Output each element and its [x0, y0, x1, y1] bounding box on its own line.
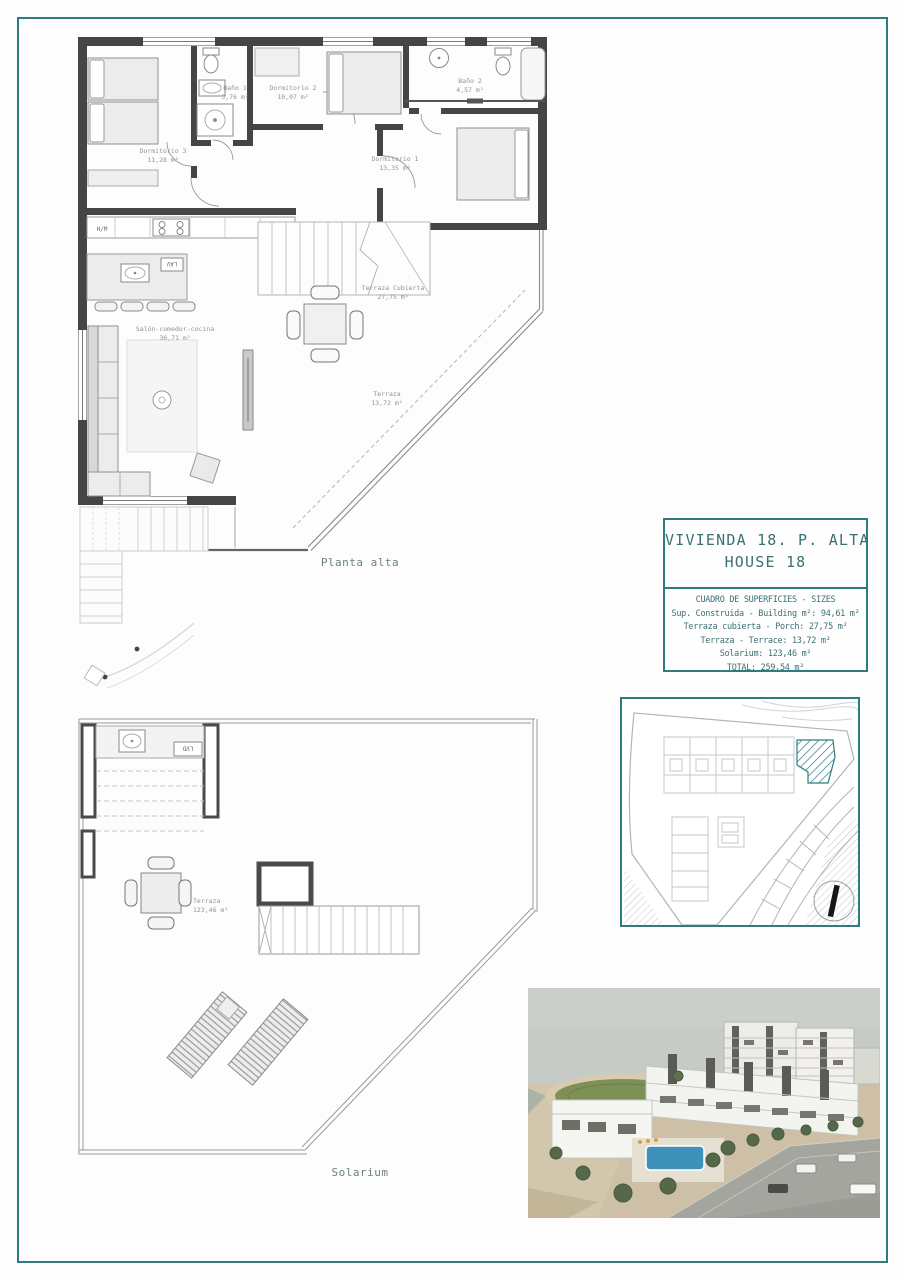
render-illustration — [528, 988, 880, 1218]
solarium-dishwasher-label: LVD — [182, 745, 193, 752]
render-photo — [528, 988, 880, 1218]
sun-loungers — [167, 992, 308, 1085]
solarium-floor-plan: LVD Terra — [75, 713, 560, 1163]
room-area-terraza: 13,72 m² — [371, 399, 402, 407]
stair-skylight — [259, 864, 419, 954]
room-area-dormitorio-1: 13,35 m² — [379, 164, 410, 172]
room-area-salon: 36,71 m² — [159, 334, 190, 342]
room-label-bano-1: Baño 1 — [223, 84, 247, 92]
plan-sheet: H/M F LAV — [0, 0, 905, 1280]
room-area-bano-1: 3,76 m² — [221, 93, 248, 101]
bedroom1-furniture — [457, 128, 529, 200]
exterior-stair — [80, 507, 208, 688]
terrain-contours — [742, 701, 858, 721]
solarium-room-area: 123,46 m² — [193, 906, 228, 914]
room-area-dormitorio-3: 11,28 m² — [147, 156, 178, 164]
title-line-2: HOUSE 18 — [665, 551, 866, 573]
room-area-terraza-cubierta: 27,75 m² — [377, 293, 408, 301]
bathroom1-fixtures — [197, 48, 233, 136]
room-label-salon: Salón-comedor-cocina — [136, 325, 214, 333]
upper-plan-caption: Planta alta — [285, 556, 435, 569]
kitchen-island — [87, 254, 195, 311]
room-label-terraza: Terraza — [373, 390, 400, 398]
bathroom2-fixtures — [405, 48, 545, 104]
room-area-bano-2: 4,57 m² — [456, 86, 483, 94]
dishwasher-label: LAV — [166, 260, 177, 267]
room-label-dormitorio-2: Dormitorio 2 — [270, 84, 317, 92]
title-block-header: VIVIENDA 18. P. ALTA HOUSE 18 — [665, 520, 866, 587]
room-label-dormitorio-3: Dormitorio 3 — [140, 147, 187, 155]
hatched-zone-left — [624, 867, 664, 925]
surfaces-row-building: Sup. Construida - Building m²: 94,61 m² — [665, 608, 866, 622]
solarium-plan-caption: Solarium — [285, 1166, 435, 1179]
highlighted-unit — [797, 740, 835, 783]
surfaces-header: CUADRO DE SUPERFICIES - SIZES — [665, 594, 866, 608]
terrace-dining-set — [287, 286, 363, 362]
washer-label: H/M — [97, 226, 108, 233]
upper-floor-plan: H/M F LAV — [75, 28, 555, 690]
upper-units — [664, 737, 794, 793]
title-line-1: VIVIENDA 18. P. ALTA — [665, 529, 866, 551]
living-furniture — [88, 326, 253, 496]
surfaces-row-solarium: Solarium: 123,46 m² — [665, 648, 866, 662]
surfaces-row-terrace: Terraza - Terrace: 13,72 m² — [665, 635, 866, 649]
bedroom3-furniture — [88, 58, 158, 186]
surfaces-row-total: TOTAL: 259,54 m² — [665, 662, 866, 672]
room-label-terraza-cubierta: Terraza Cubierta — [362, 284, 425, 292]
solarium-room-label: Terraza — [193, 897, 220, 905]
pergola-kitchen — [82, 725, 218, 877]
solarium-dining-set — [125, 857, 191, 929]
room-label-dormitorio-1: Dormitorio 1 — [372, 155, 419, 163]
surfaces-table: CUADRO DE SUPERFICIES - SIZES Sup. Const… — [665, 589, 866, 672]
site-plan-drawing — [622, 699, 858, 925]
room-area-dormitorio-2: 10,07 m² — [277, 93, 308, 101]
site-plan-box — [620, 697, 860, 927]
title-block: VIVIENDA 18. P. ALTA HOUSE 18 CUADRO DE … — [663, 518, 868, 672]
surfaces-row-porch: Terraza cubierta - Porch: 27,75 m² — [665, 621, 866, 635]
lower-units — [672, 817, 744, 901]
bedroom2-furniture — [255, 48, 401, 114]
room-label-bano-2: Baño 2 — [458, 77, 482, 85]
